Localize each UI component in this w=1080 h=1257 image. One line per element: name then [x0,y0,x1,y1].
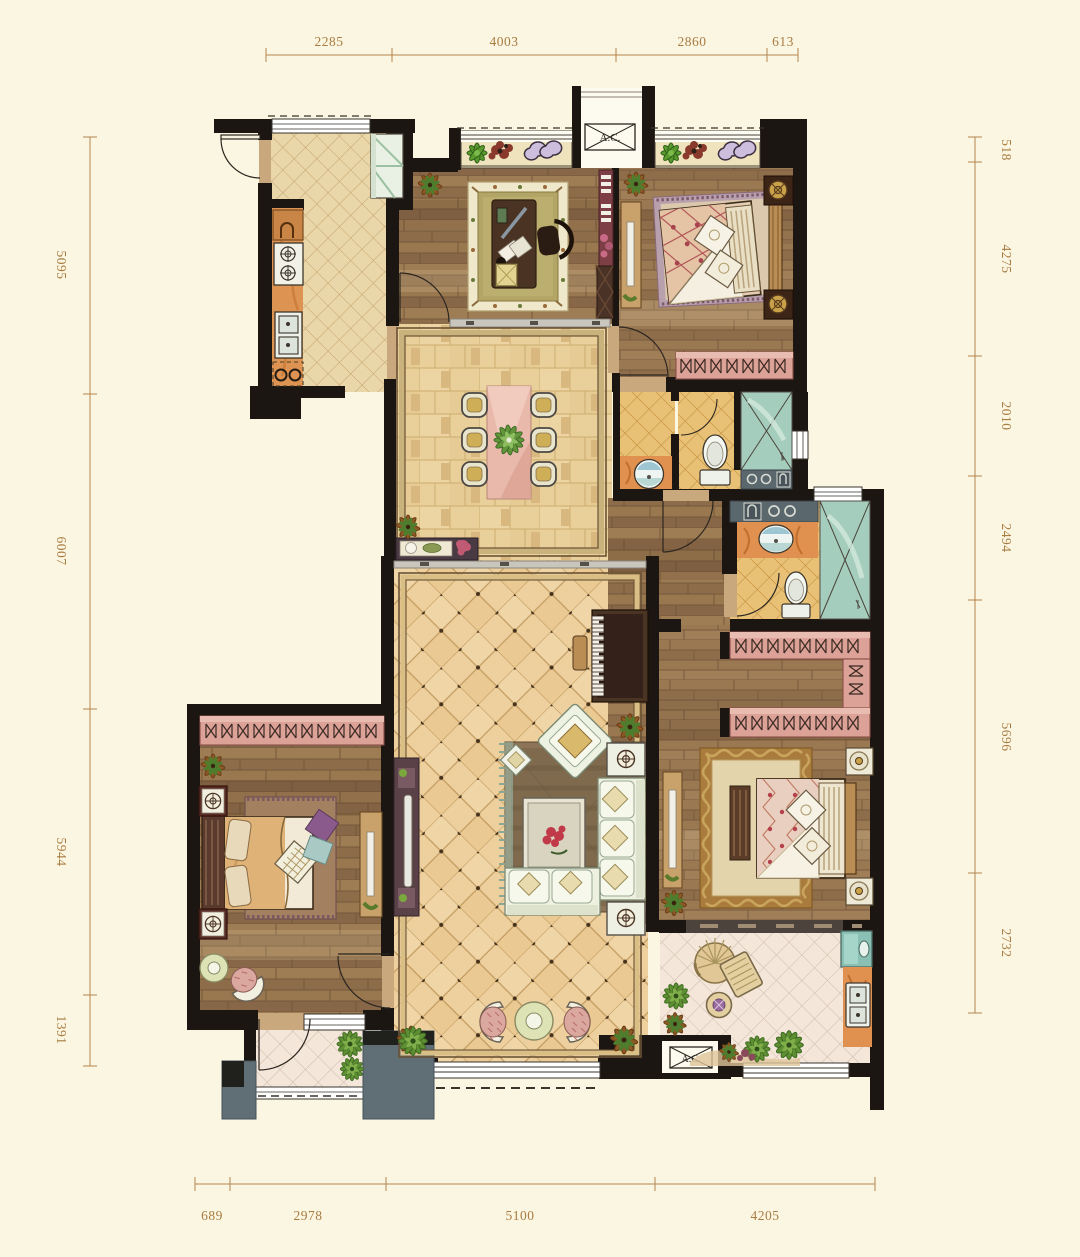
svg-text:4003: 4003 [490,34,519,49]
svg-text:2860: 2860 [678,34,707,49]
svg-text:4275: 4275 [999,245,1014,274]
svg-text:6007: 6007 [54,537,69,566]
svg-text:518: 518 [999,139,1014,161]
svg-text:5100: 5100 [506,1208,535,1223]
svg-text:2978: 2978 [294,1208,323,1223]
svg-text:4205: 4205 [751,1208,780,1223]
svg-text:2010: 2010 [999,402,1014,431]
svg-text:5095: 5095 [54,251,69,280]
svg-text:613: 613 [772,34,794,49]
svg-text:2732: 2732 [999,929,1014,958]
svg-text:1391: 1391 [54,1016,69,1045]
svg-text:5944: 5944 [54,838,69,867]
svg-text:689: 689 [201,1208,223,1223]
svg-text:2285: 2285 [315,34,344,49]
svg-text:5696: 5696 [999,723,1014,752]
svg-text:A.C.: A.C. [600,132,621,144]
svg-text:2494: 2494 [999,524,1014,553]
